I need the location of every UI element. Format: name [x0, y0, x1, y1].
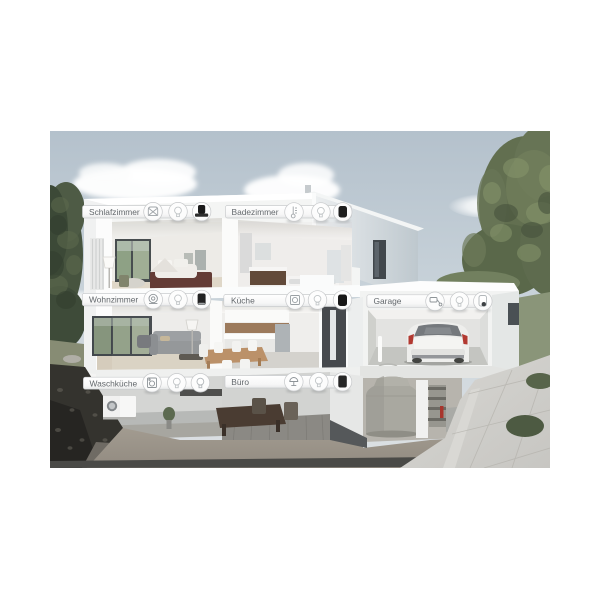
svg-text:Waschküche: Waschküche: [90, 378, 138, 388]
svg-text:Badezimmer: Badezimmer: [232, 207, 279, 217]
svg-text:Wohnzimmer: Wohnzimmer: [89, 295, 138, 305]
svg-text:Schlafzimmer: Schlafzimmer: [89, 207, 140, 217]
svg-text:Büro: Büro: [231, 377, 249, 387]
svg-text:Garage: Garage: [374, 296, 402, 306]
svg-text:Küche: Küche: [231, 296, 255, 306]
